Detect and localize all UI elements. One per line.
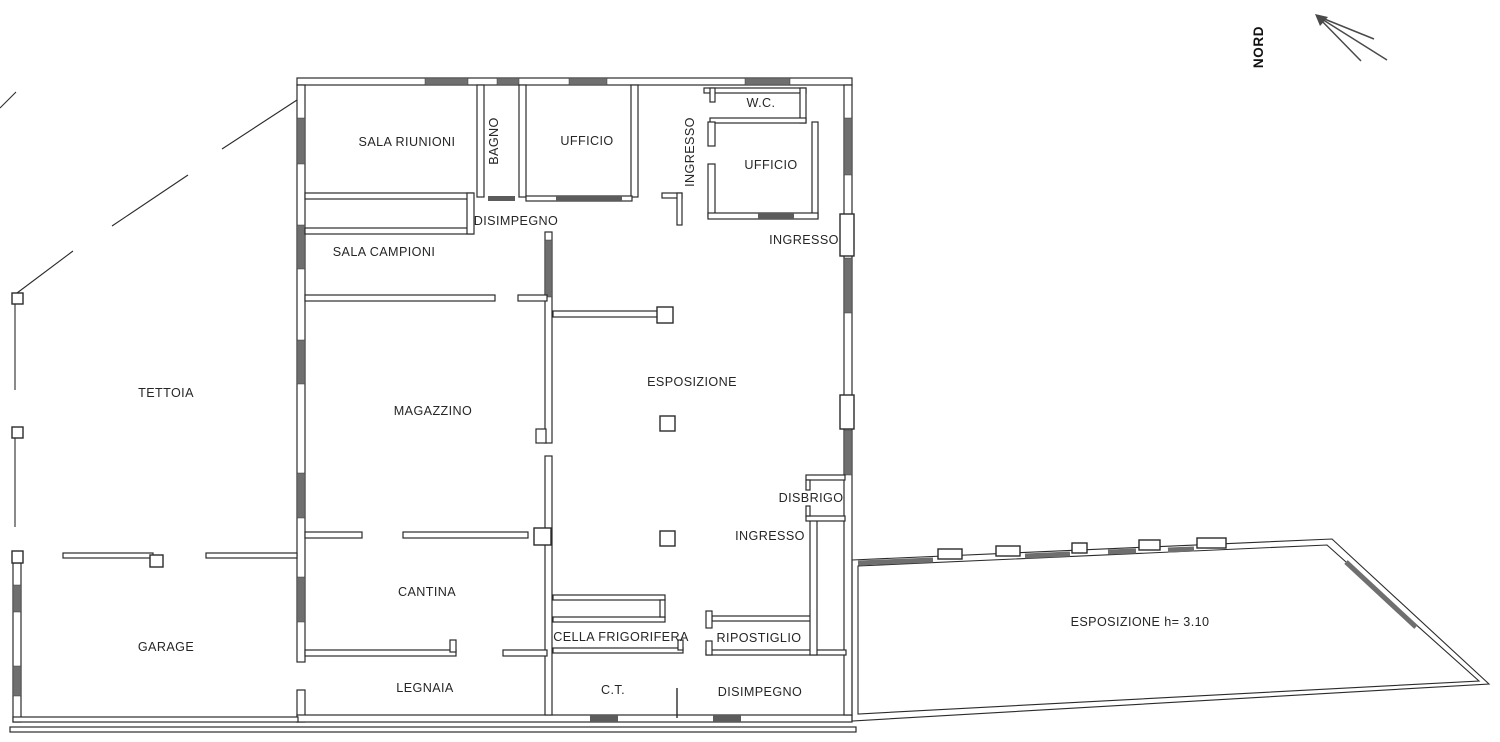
interior-walls xyxy=(305,85,846,718)
room-label-ripostiglio: RIPOSTIGLIO xyxy=(717,631,802,645)
room-label-bagno: BAGNO xyxy=(487,117,501,165)
room-labels: SALA RIUNIONI BAGNO UFFICIO INGRESSO W.C… xyxy=(138,26,1266,699)
main-building-outer-walls xyxy=(297,78,852,722)
room-label-garage: GARAGE xyxy=(138,640,194,654)
room-label-esposizione: ESPOSIZIONE xyxy=(647,375,737,389)
room-label-ingresso-top: INGRESSO xyxy=(769,233,839,247)
room-label-ufficio-right: UFFICIO xyxy=(744,158,797,172)
room-label-esposizione-wing: ESPOSIZIONE h= 3.10 xyxy=(1071,615,1210,629)
room-label-tettoia: TETTOIA xyxy=(138,386,194,400)
room-label-sala-riunioni: SALA RIUNIONI xyxy=(359,135,456,149)
room-label-disbrigo: DISBRIGO xyxy=(779,491,844,505)
expo-wing-walls xyxy=(852,538,1489,721)
room-label-cella-frigorifera: CELLA FRIGORIFERA xyxy=(553,630,689,644)
north-label: NORD xyxy=(1251,26,1266,68)
room-label-disimpegno-bottom: DISIMPEGNO xyxy=(718,685,802,699)
floor-plan-page: SALA RIUNIONI BAGNO UFFICIO INGRESSO W.C… xyxy=(0,0,1500,742)
room-label-ufficio-top: UFFICIO xyxy=(560,134,613,148)
window-openings xyxy=(13,78,854,722)
room-label-magazzino: MAGAZZINO xyxy=(394,404,472,418)
floor-plan-canvas: SALA RIUNIONI BAGNO UFFICIO INGRESSO W.C… xyxy=(0,0,1500,742)
room-label-disimpegno-top: DISIMPEGNO xyxy=(474,214,558,228)
room-label-wc: W.C. xyxy=(747,96,776,110)
room-label-ingresso-middle: INGRESSO xyxy=(735,529,805,543)
room-label-cantina: CANTINA xyxy=(398,585,456,599)
room-label-ct: C.T. xyxy=(601,683,625,697)
north-arrow xyxy=(1315,14,1387,61)
room-label-legnaia: LEGNAIA xyxy=(396,681,454,695)
room-label-ingresso-vertical: INGRESSO xyxy=(683,117,697,187)
room-label-sala-campioni: SALA CAMPIONI xyxy=(333,245,435,259)
